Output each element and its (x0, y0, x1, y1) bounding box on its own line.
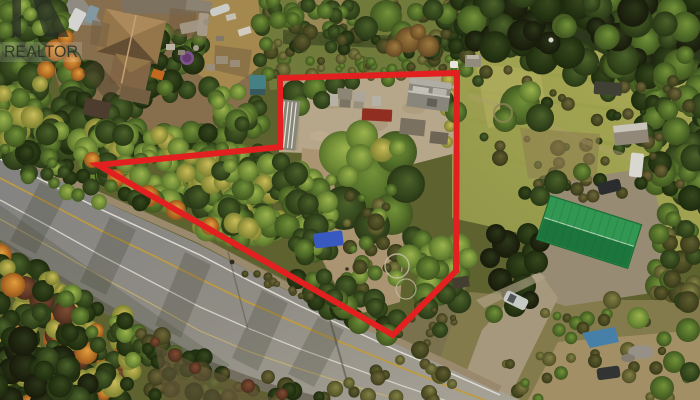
svg-text:REALTOR: REALTOR (4, 43, 78, 61)
